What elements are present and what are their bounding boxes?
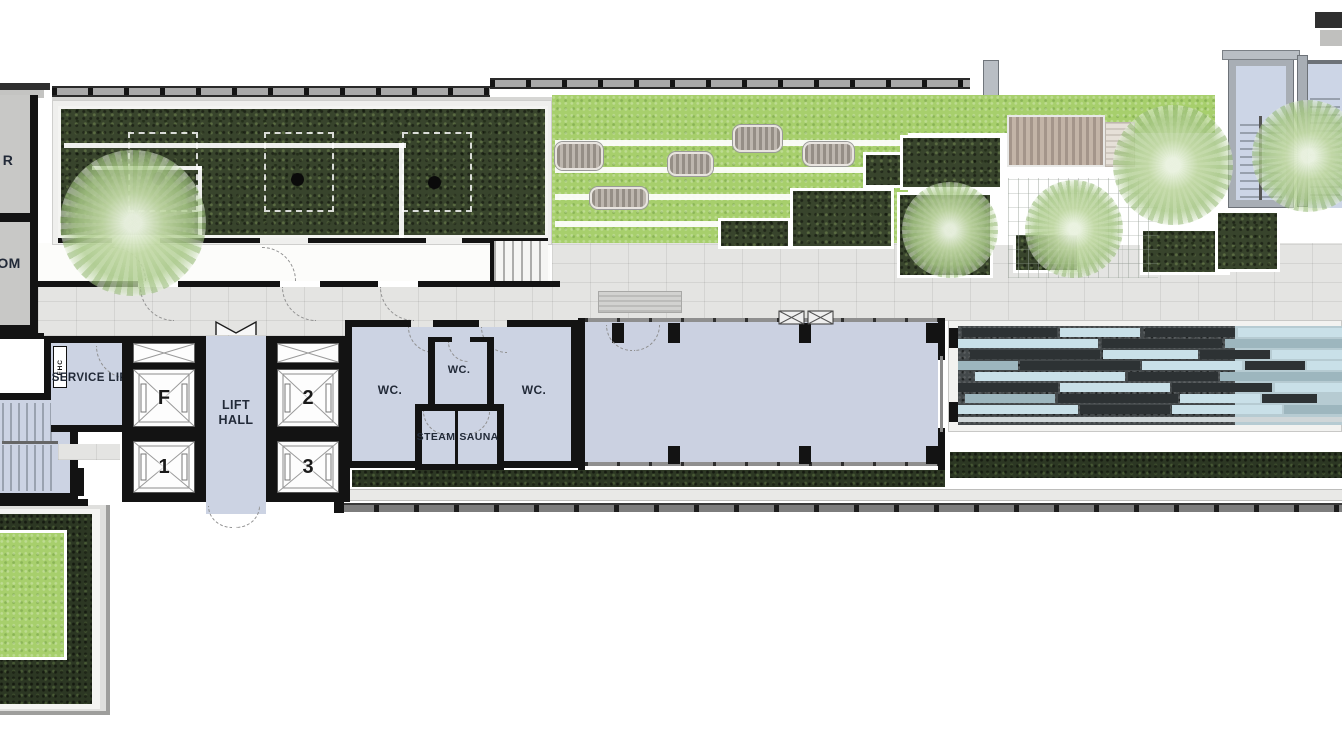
lift-door-slot bbox=[277, 343, 339, 363]
pool-tile bbox=[1180, 394, 1260, 403]
wall bbox=[0, 325, 38, 333]
lift-car-1: 1 bbox=[133, 441, 195, 493]
pool-tile bbox=[1275, 383, 1342, 392]
hedge-planter bbox=[718, 218, 791, 249]
pool-tile bbox=[1128, 372, 1218, 381]
wall bbox=[433, 320, 479, 327]
stair-cap bbox=[1222, 50, 1300, 60]
wall bbox=[178, 281, 280, 287]
pool-tile bbox=[970, 350, 1100, 359]
wall bbox=[487, 337, 494, 411]
glass-wall bbox=[585, 318, 938, 322]
wall bbox=[345, 461, 422, 468]
tree-icon bbox=[902, 182, 998, 278]
pool-tile bbox=[1145, 328, 1235, 337]
hedge-strip bbox=[950, 452, 1342, 478]
pool-tile bbox=[958, 361, 1018, 370]
wall bbox=[320, 281, 378, 287]
planting-grid bbox=[264, 132, 334, 212]
planting-grid bbox=[402, 132, 472, 212]
pool-tile bbox=[1272, 350, 1342, 359]
lift-car-2: 2 bbox=[277, 369, 339, 427]
wall bbox=[0, 333, 44, 339]
double-door-icon bbox=[778, 310, 834, 326]
pool-tile bbox=[1142, 361, 1242, 370]
steam-label: STEAM bbox=[414, 431, 458, 443]
pool-tile bbox=[1060, 383, 1170, 392]
tree-icon bbox=[60, 150, 206, 296]
lift-2-label: 2 bbox=[277, 369, 339, 427]
pool-tile bbox=[1262, 394, 1317, 403]
canopy-edge bbox=[52, 86, 490, 97]
roof-edge bbox=[1320, 30, 1342, 46]
wall bbox=[938, 318, 945, 360]
pool-tile bbox=[1103, 350, 1198, 359]
pool-tile bbox=[962, 328, 1057, 337]
pool-tile bbox=[1238, 328, 1342, 337]
lift-door-slot bbox=[133, 343, 195, 363]
wall bbox=[415, 404, 504, 411]
lift-car-f: F bbox=[133, 369, 195, 427]
garden-bench bbox=[803, 142, 854, 166]
wall bbox=[0, 213, 38, 222]
lawn bbox=[0, 530, 67, 660]
room-partial-bottom bbox=[0, 222, 30, 325]
pool-tile bbox=[958, 405, 1078, 414]
column bbox=[799, 446, 811, 464]
lift-1-label: 1 bbox=[133, 441, 195, 493]
wc-left-label: WC. bbox=[352, 383, 428, 397]
wall bbox=[418, 281, 560, 287]
wall bbox=[938, 428, 945, 470]
wall bbox=[72, 468, 84, 496]
canopy-edge bbox=[490, 78, 970, 89]
wall bbox=[44, 336, 51, 398]
wall bbox=[507, 320, 578, 327]
pool-tile bbox=[1225, 339, 1342, 348]
sauna-label: SAUNA bbox=[456, 431, 502, 443]
wall bbox=[497, 461, 578, 468]
pool-tile bbox=[1102, 339, 1222, 348]
wall bbox=[345, 320, 411, 327]
pool-tile bbox=[958, 339, 1098, 348]
garden-path bbox=[64, 143, 406, 148]
garden-bench bbox=[668, 152, 713, 176]
walkway-mat bbox=[598, 291, 682, 313]
glass-wall bbox=[585, 462, 938, 466]
pool-marker bbox=[949, 402, 958, 422]
pool-ledge bbox=[958, 417, 1342, 422]
paving bbox=[58, 444, 120, 460]
pool-marker bbox=[949, 328, 958, 348]
hedge-planter bbox=[790, 188, 894, 249]
column bbox=[668, 446, 680, 464]
pool-tile bbox=[975, 372, 1125, 381]
pool-tile bbox=[1245, 361, 1305, 370]
wall bbox=[470, 337, 494, 342]
lift-car-3: 3 bbox=[277, 441, 339, 493]
pool-tile bbox=[1220, 372, 1342, 381]
garden-path bbox=[555, 167, 885, 173]
lift-f-label: F bbox=[133, 369, 195, 427]
stair-treads bbox=[2, 403, 58, 441]
wall bbox=[415, 464, 504, 470]
pool-tile bbox=[1060, 328, 1140, 337]
stair-rail bbox=[2, 441, 58, 444]
wc-middle-label: WC. bbox=[431, 364, 487, 377]
pool-tile bbox=[1307, 361, 1342, 370]
pool-tile bbox=[1080, 405, 1170, 414]
pool-tile bbox=[1284, 405, 1342, 414]
garden-bench bbox=[555, 142, 603, 170]
pool-tile bbox=[1058, 394, 1178, 403]
column bbox=[926, 323, 938, 343]
pool-tile bbox=[1200, 350, 1270, 359]
planter-ledge bbox=[340, 489, 1342, 501]
deck bbox=[1007, 115, 1105, 167]
pool-tile bbox=[1020, 361, 1140, 370]
lift-3-label: 3 bbox=[277, 441, 339, 493]
pool-tile bbox=[1172, 383, 1272, 392]
pool-tile bbox=[958, 383, 1058, 392]
pool-tile bbox=[965, 394, 1055, 403]
lift-hall-label: LIFT HALL bbox=[206, 398, 266, 428]
glass-wall bbox=[940, 356, 943, 432]
canopy-lower bbox=[334, 503, 1342, 512]
wall bbox=[578, 318, 585, 470]
tree-trunk-dot bbox=[428, 176, 441, 189]
hedge-planter bbox=[1215, 210, 1280, 272]
tree-trunk-dot bbox=[291, 173, 304, 186]
roof-edge bbox=[0, 83, 50, 90]
tree-icon bbox=[1113, 105, 1233, 225]
hedge-strip bbox=[352, 470, 945, 487]
column bbox=[668, 323, 680, 343]
stair-treads bbox=[2, 445, 58, 491]
tree-icon bbox=[1025, 180, 1123, 278]
wall bbox=[571, 320, 578, 468]
wc-right-label: WC. bbox=[498, 383, 570, 397]
room-partial-top-label: R bbox=[0, 152, 22, 169]
door-leaf-icon bbox=[214, 320, 258, 336]
wall bbox=[308, 238, 426, 243]
stair-treads bbox=[490, 241, 548, 283]
column bbox=[799, 323, 811, 343]
garden-bench bbox=[733, 125, 782, 152]
pool-tile bbox=[1172, 405, 1282, 414]
garden-bench bbox=[590, 187, 648, 209]
wall bbox=[0, 499, 88, 506]
roof-edge bbox=[1315, 12, 1342, 28]
wall bbox=[345, 320, 352, 468]
paving bbox=[0, 287, 552, 321]
floor-plan: R OM FHC SERVICE LIFT F 1 LIFT HALL 2 bbox=[0, 0, 1342, 754]
column bbox=[926, 446, 938, 464]
room-partial-bottom-label: OM bbox=[0, 255, 26, 272]
